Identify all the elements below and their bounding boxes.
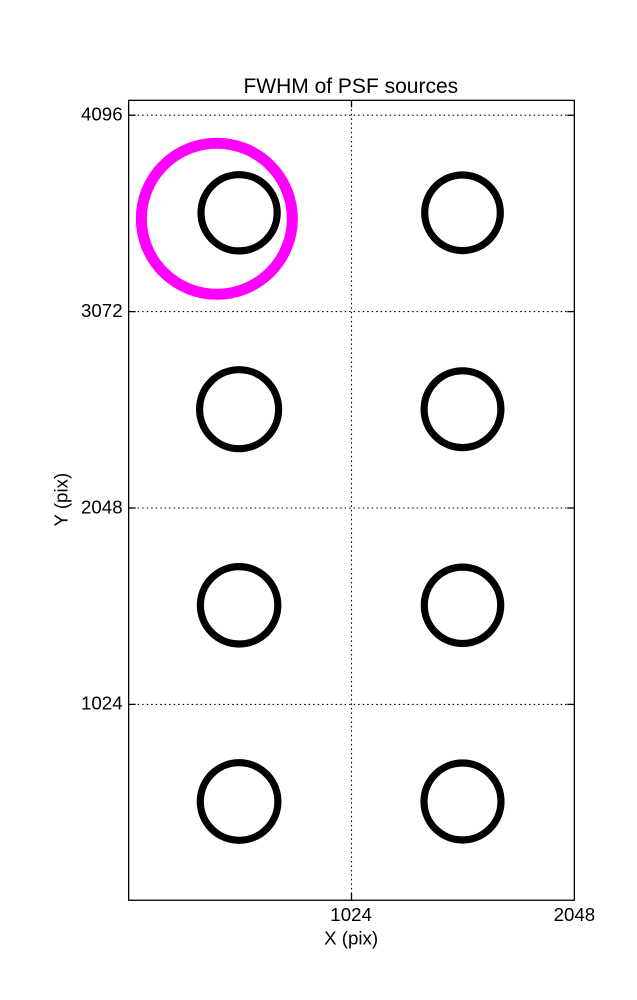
svg-text:1024: 1024 bbox=[81, 693, 123, 714]
svg-text:2048: 2048 bbox=[81, 496, 123, 517]
svg-text:2048: 2048 bbox=[554, 904, 596, 925]
svg-text:4096: 4096 bbox=[81, 104, 123, 125]
svg-text:FWHM of PSF sources: FWHM of PSF sources bbox=[243, 75, 458, 98]
svg-text:X (pix): X (pix) bbox=[324, 928, 378, 949]
svg-text:Y (pix): Y (pix) bbox=[51, 473, 72, 527]
svg-text:1024: 1024 bbox=[330, 904, 372, 925]
svg-text:3072: 3072 bbox=[81, 300, 123, 321]
